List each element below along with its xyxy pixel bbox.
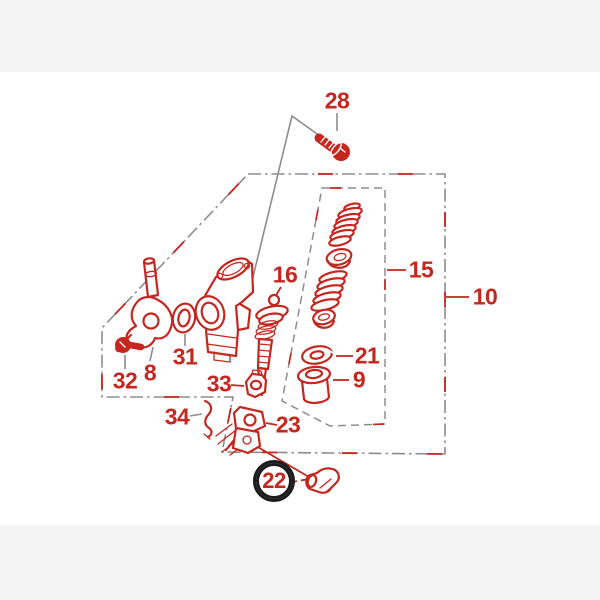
callout-28[interactable]: 28 xyxy=(325,90,350,113)
callout-15[interactable]: 15 xyxy=(409,259,434,282)
bushing-9 xyxy=(297,365,330,403)
fitting-23 xyxy=(216,407,265,455)
washer-21 xyxy=(301,344,333,366)
callout-16[interactable]: 16 xyxy=(273,264,298,287)
parts-diagram-art xyxy=(0,0,600,600)
callout-10[interactable]: 10 xyxy=(473,286,498,309)
cup-upper xyxy=(325,247,353,268)
bolt-28 xyxy=(319,137,350,161)
spring-lower xyxy=(310,269,347,313)
callout-23[interactable]: 23 xyxy=(276,414,301,437)
callout-33[interactable]: 33 xyxy=(207,373,232,396)
clip-34 xyxy=(204,401,212,439)
callout-34[interactable]: 34 xyxy=(165,406,190,429)
valve-body xyxy=(191,254,253,362)
o-ring-31 xyxy=(170,302,198,335)
callout-22[interactable]: 22 xyxy=(253,460,295,502)
callout-32[interactable]: 32 xyxy=(113,370,138,393)
callout-9[interactable]: 9 xyxy=(353,369,365,392)
callout-31[interactable]: 31 xyxy=(173,346,198,369)
callout-21[interactable]: 21 xyxy=(355,345,380,368)
diagram-canvas: 281615102193183233342322 xyxy=(0,0,600,600)
elbow-22 xyxy=(306,468,339,492)
callout-8[interactable]: 8 xyxy=(144,362,156,385)
spring-upper xyxy=(328,202,362,247)
